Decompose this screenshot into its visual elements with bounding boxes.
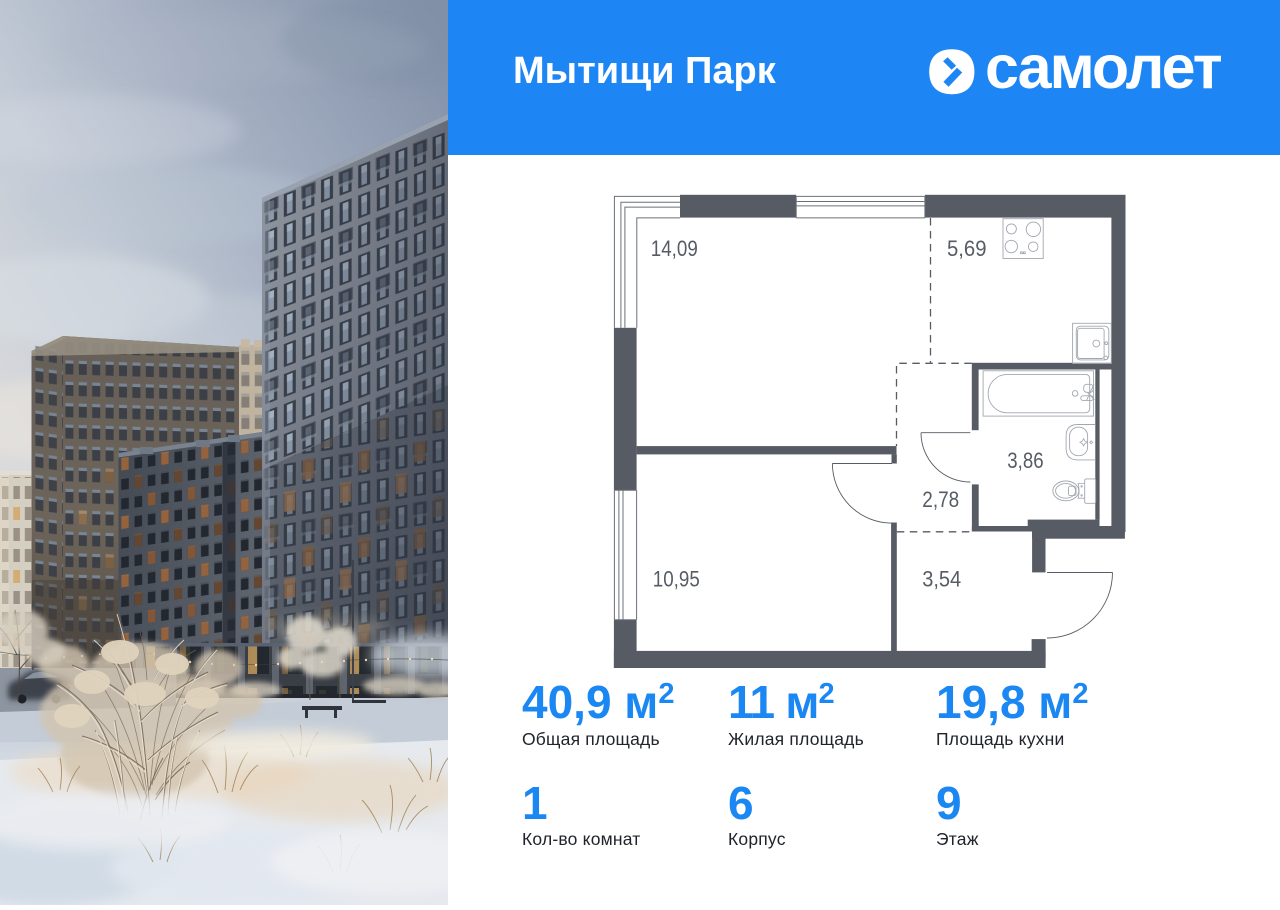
svg-text:3,86: 3,86: [1007, 448, 1043, 473]
svg-text:3,54: 3,54: [922, 567, 961, 592]
svg-text:5,69: 5,69: [947, 236, 987, 261]
svg-text:10,95: 10,95: [653, 567, 700, 592]
svg-text:2,78: 2,78: [922, 487, 959, 512]
svg-text:14,09: 14,09: [651, 236, 698, 261]
